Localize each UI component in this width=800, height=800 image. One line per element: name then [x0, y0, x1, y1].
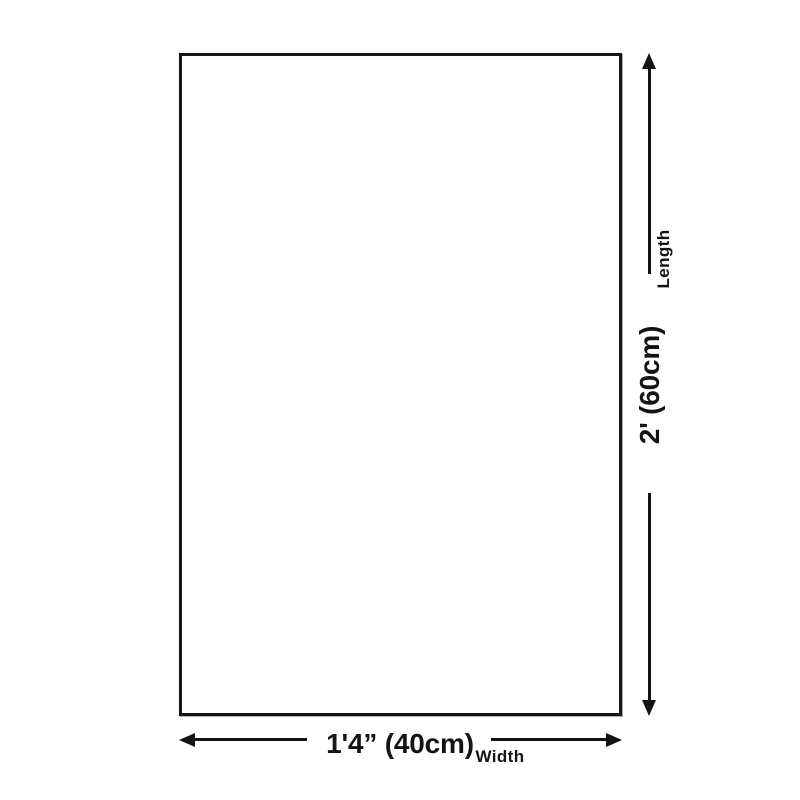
arrow-left-icon: [179, 733, 195, 747]
dimension-diagram: Length 2' (60cm) 1'4” (40cm) Width: [0, 0, 800, 800]
arrow-right-icon: [606, 733, 622, 747]
width-dimension-line-left: [194, 738, 307, 741]
width-axis-label: Width: [475, 747, 524, 767]
arrow-down-icon: [642, 700, 656, 716]
length-value: 2' (60cm): [634, 326, 666, 444]
length-dimension-line-top: [648, 66, 651, 274]
product-outline-rect: [179, 53, 622, 716]
width-dimension-line-right: [491, 738, 606, 741]
length-dimension-line-bottom: [648, 493, 651, 700]
width-value: 1'4” (40cm): [326, 728, 474, 760]
length-axis-label: Length: [654, 229, 674, 288]
